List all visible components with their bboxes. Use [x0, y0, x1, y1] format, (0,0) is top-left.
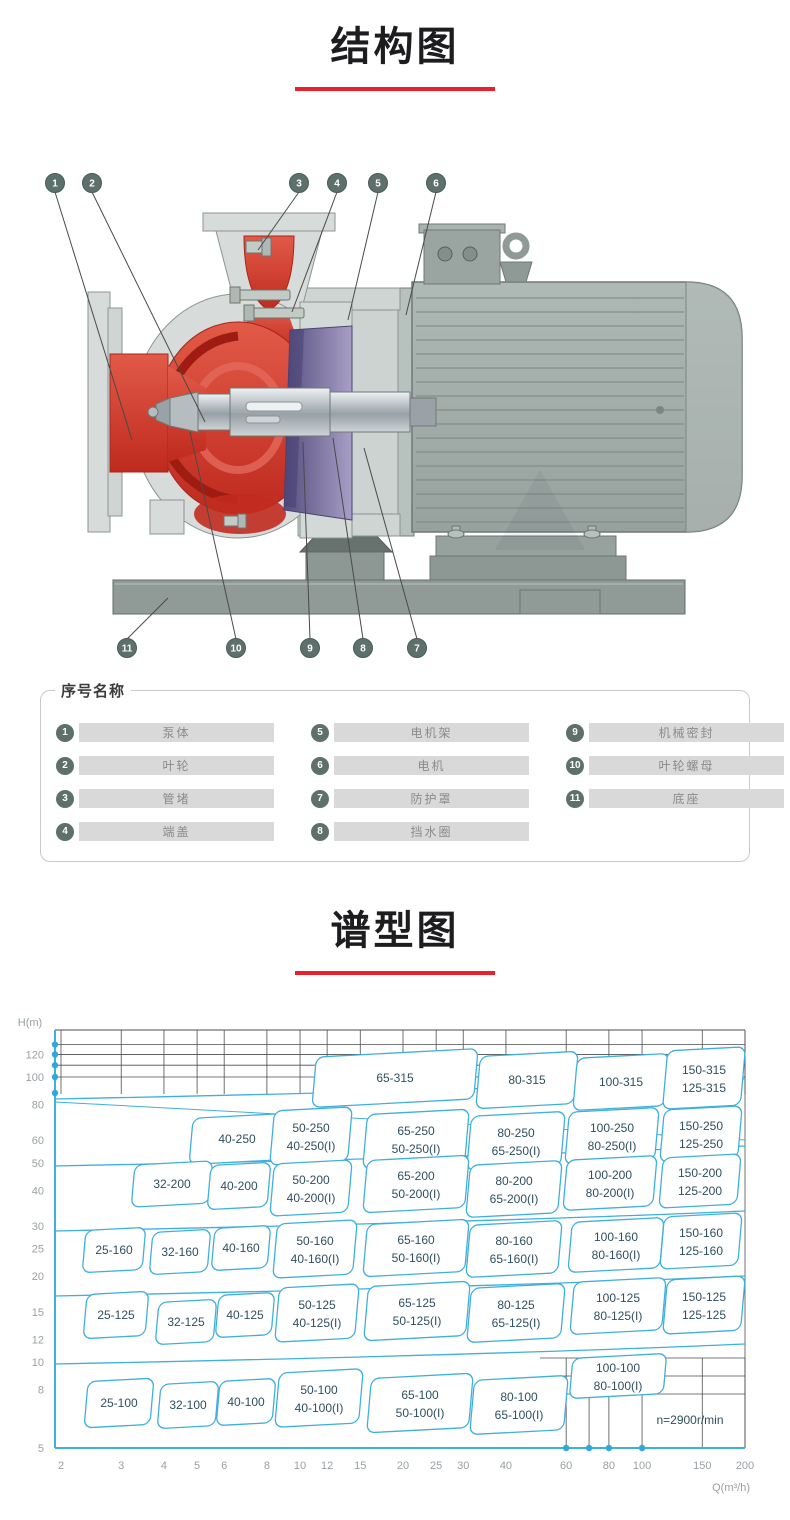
region-label: 50-200 [292, 1173, 330, 1187]
region-label: 40-160 [222, 1241, 260, 1255]
part-number-badge: 9 [566, 724, 584, 742]
speed-annotation: n=2900r/min [656, 1413, 723, 1427]
parts-list-title: 序号名称 [55, 680, 131, 701]
x-tick-label: 6 [221, 1460, 227, 1472]
callout-5: 5 [369, 174, 388, 193]
part-label: 底座 [589, 789, 784, 808]
y-tick-label: 20 [32, 1271, 44, 1283]
x-tick-label: 60 [560, 1460, 572, 1472]
x-tick-label: 80 [603, 1460, 615, 1472]
region-label: 50-100(I) [396, 1406, 445, 1420]
region-label: 80-315 [508, 1073, 546, 1087]
region-label: 50-100 [300, 1383, 338, 1397]
region-label: 100-315 [599, 1075, 643, 1089]
region-label: 150-250 [679, 1119, 723, 1133]
svg-text:1: 1 [52, 179, 58, 190]
region-label: 65-250(I) [492, 1144, 541, 1158]
parts-column-1: 1泵体2叶轮3管堵4端盖 [56, 723, 274, 855]
y-axis-title: H(m) [18, 1017, 42, 1029]
svg-text:10: 10 [230, 644, 242, 655]
callout-11: 11 [118, 639, 137, 658]
pump-model-region [270, 1160, 352, 1216]
x-axis-title: Q(m³/h) [712, 1482, 750, 1494]
axis-dot [52, 1090, 58, 1096]
axis-dot [586, 1445, 592, 1451]
region-label: 100-250 [590, 1121, 634, 1135]
region-label: 80-100 [500, 1390, 538, 1404]
region-label: 32-160 [161, 1245, 199, 1259]
pump-model-region [466, 1160, 562, 1217]
pump-model-region [270, 1107, 353, 1165]
pump-structure-diagram: 1234561110987 [0, 140, 790, 680]
region-label: 80-100(I) [594, 1379, 643, 1393]
parts-list-box: 序号名称 1泵体2叶轮3管堵4端盖 5电机架6电机7防护罩8挡水圈 9机械密封1… [40, 690, 750, 862]
x-tick-label: 2 [58, 1460, 64, 1472]
region-label: 40-160(I) [291, 1252, 340, 1266]
region-label: 40-250 [218, 1132, 256, 1146]
x-tick-label: 4 [161, 1460, 167, 1472]
region-label: 150-125 [682, 1290, 726, 1304]
y-tick-label: 80 [32, 1100, 44, 1112]
region-label: 32-125 [167, 1315, 205, 1329]
part-item-11: 11底座 [566, 789, 784, 808]
region-label: 80-250 [497, 1126, 535, 1140]
x-tick-label: 12 [321, 1460, 333, 1472]
axis-dot [52, 1051, 58, 1057]
region-label: 65-315 [376, 1071, 414, 1085]
part-label: 叶轮 [79, 756, 274, 775]
region-label: 80-125(I) [594, 1309, 643, 1323]
part-item-5: 5电机架 [311, 723, 529, 742]
part-label: 泵体 [79, 723, 274, 742]
callout-4: 4 [328, 174, 347, 193]
part-label: 挡水圈 [334, 822, 529, 841]
motor-body [396, 282, 742, 536]
axis-dot [563, 1445, 569, 1451]
x-tick-label: 15 [354, 1460, 366, 1472]
pump-model-region [470, 1375, 569, 1434]
x-tick-label: 10 [294, 1460, 306, 1472]
pump-model-region [563, 1155, 657, 1210]
region-label: 65-160(I) [490, 1252, 539, 1266]
callout-3: 3 [290, 174, 309, 193]
y-tick-label: 25 [32, 1244, 44, 1256]
x-tick-label: 150 [693, 1460, 711, 1472]
region-label: 65-125(I) [492, 1316, 541, 1330]
region-label: 50-200(I) [392, 1187, 441, 1201]
svg-text:7: 7 [414, 644, 420, 655]
svg-text:5: 5 [375, 179, 381, 190]
svg-text:6: 6 [433, 179, 439, 190]
part-item-7: 7防护罩 [311, 789, 529, 808]
svg-text:4: 4 [334, 179, 340, 190]
region-label: 150-315 [682, 1063, 726, 1077]
part-number-badge: 3 [56, 790, 74, 808]
pump-model-region [568, 1217, 664, 1272]
title-underline [295, 87, 495, 91]
x-tick-label: 30 [457, 1460, 469, 1472]
region-label: 65-160 [397, 1233, 435, 1247]
region-label: 125-125 [682, 1308, 726, 1322]
pump-model-region [363, 1219, 469, 1277]
y-tick-label: 12 [32, 1334, 44, 1346]
pump-model-region [367, 1373, 474, 1433]
region-label: 125-160 [679, 1244, 723, 1258]
part-item-3: 3管堵 [56, 789, 274, 808]
pump-model-region [364, 1281, 471, 1341]
y-tick-label: 30 [32, 1221, 44, 1233]
pump-model-region [663, 1276, 746, 1334]
part-label: 电机 [334, 756, 529, 775]
region-label: 40-200(I) [287, 1191, 336, 1205]
region-label: 150-200 [678, 1166, 722, 1180]
part-number-badge: 11 [566, 790, 584, 808]
spectrum-title-block: 谱型图 [0, 898, 790, 975]
part-number-badge: 8 [311, 823, 329, 841]
region-label: 40-125(I) [293, 1316, 342, 1330]
base-plate [113, 580, 685, 614]
region-label: 25-160 [95, 1243, 133, 1257]
region-label: 50-125(I) [393, 1314, 442, 1328]
part-number-badge: 4 [56, 823, 74, 841]
part-number-badge: 10 [566, 757, 584, 775]
region-label: 100-200 [588, 1168, 632, 1182]
region-label: 50-250 [292, 1121, 330, 1135]
region-label: 125-315 [682, 1081, 726, 1095]
parts-column-3: 9机械密封10叶轮螺母11底座 [566, 723, 784, 822]
pump-model-region [363, 1155, 469, 1213]
callout-9: 9 [301, 639, 320, 658]
region-label: 100-160 [594, 1230, 638, 1244]
part-item-4: 4端盖 [56, 822, 274, 841]
region-label: 40-100(I) [295, 1401, 344, 1415]
region-label: 150-160 [679, 1226, 723, 1240]
region-label: 100-125 [596, 1291, 640, 1305]
part-label: 电机架 [334, 723, 529, 742]
y-tick-label: 120 [26, 1049, 44, 1061]
callout-1: 1 [46, 174, 65, 193]
part-number-badge: 1 [56, 724, 74, 742]
region-label: 80-160(I) [592, 1248, 641, 1262]
pump-model-region [275, 1369, 364, 1428]
region-label: 40-250(I) [287, 1139, 336, 1153]
svg-text:8: 8 [360, 644, 366, 655]
region-label: 40-200 [220, 1179, 258, 1193]
region-label: 50-125 [298, 1298, 336, 1312]
y-tick-label: 10 [32, 1357, 44, 1369]
region-label: 80-250(I) [588, 1139, 637, 1153]
pipe-plug [246, 238, 271, 256]
region-label: 65-250 [397, 1124, 435, 1138]
y-tick-label: 60 [32, 1135, 44, 1147]
region-label: 25-125 [97, 1308, 135, 1322]
region-label: 65-100 [401, 1388, 439, 1402]
part-label: 端盖 [79, 822, 274, 841]
x-tick-label: 100 [633, 1460, 651, 1472]
lifting-eye [500, 236, 532, 282]
y-tick-label: 5 [38, 1443, 44, 1455]
x-tick-label: 3 [118, 1460, 124, 1472]
x-tick-label: 40 [500, 1460, 512, 1472]
region-label: 125-250 [679, 1137, 723, 1151]
region-label: 32-200 [153, 1177, 191, 1191]
x-tick-label: 25 [430, 1460, 442, 1472]
x-tick-label: 200 [736, 1460, 754, 1472]
svg-text:2: 2 [89, 179, 95, 190]
pump-model-region [660, 1106, 742, 1162]
region-label: 50-160 [296, 1234, 334, 1248]
y-tick-label: 40 [32, 1185, 44, 1197]
region-label: 40-100 [227, 1395, 265, 1409]
axis-dot [52, 1074, 58, 1080]
y-tick-label: 50 [32, 1158, 44, 1170]
region-label: 32-100 [169, 1398, 207, 1412]
pump-model-region [663, 1047, 746, 1109]
region-label: 80-200(I) [586, 1186, 635, 1200]
y-tick-label: 15 [32, 1307, 44, 1319]
part-item-2: 2叶轮 [56, 756, 274, 775]
region-label: 125-200 [678, 1184, 722, 1198]
callout-2: 2 [83, 174, 102, 193]
region-label: 65-100(I) [495, 1408, 544, 1422]
svg-text:3: 3 [296, 179, 302, 190]
part-label: 防护罩 [334, 789, 529, 808]
axis-dot [52, 1062, 58, 1068]
region-label: 40-125 [226, 1308, 264, 1322]
region-label: 65-200 [397, 1169, 435, 1183]
structure-title-block: 结构图 [0, 14, 790, 91]
part-item-10: 10叶轮螺母 [566, 756, 784, 775]
terminal-box [419, 224, 505, 284]
y-tick-label: 8 [38, 1385, 44, 1397]
callout-7: 7 [408, 639, 427, 658]
y-tick-label: 100 [26, 1072, 44, 1084]
part-item-9: 9机械密封 [566, 723, 784, 742]
callout-6: 6 [427, 174, 446, 193]
axis-dot [52, 1041, 58, 1047]
x-tick-label: 20 [397, 1460, 409, 1472]
pump-selection-chart: 65-31580-315100-315150-315125-31540-2505… [0, 1010, 790, 1515]
pump-model-region [273, 1220, 358, 1279]
part-label: 管堵 [79, 789, 274, 808]
region-label: 80-160 [495, 1234, 533, 1248]
region-label: 65-125 [398, 1296, 436, 1310]
pump-model-region [467, 1283, 566, 1342]
svg-text:11: 11 [122, 644, 133, 655]
region-label: 65-200(I) [490, 1192, 539, 1206]
spectrum-section-title: 谱型图 [0, 898, 790, 956]
pump-model-region [659, 1154, 741, 1208]
region-label: 50-160(I) [392, 1251, 441, 1265]
part-number-badge: 5 [311, 724, 329, 742]
region-label: 100-100 [596, 1361, 640, 1375]
pump-shaft [198, 388, 436, 436]
svg-text:9: 9 [307, 644, 313, 655]
part-label: 叶轮螺母 [589, 756, 784, 775]
part-item-1: 1泵体 [56, 723, 274, 742]
region-label: 80-125 [497, 1298, 535, 1312]
region-label: 80-200 [495, 1174, 533, 1188]
x-tick-label: 8 [264, 1460, 270, 1472]
structure-section-title: 结构图 [0, 14, 790, 72]
part-number-badge: 6 [311, 757, 329, 775]
callout-10: 10 [227, 639, 246, 658]
x-tick-label: 5 [194, 1460, 200, 1472]
drain-plug [224, 514, 246, 528]
title-underline [295, 971, 495, 975]
region-label: 50-250(I) [392, 1142, 441, 1156]
pump-model-region [570, 1277, 666, 1334]
pump-model-region [275, 1284, 360, 1343]
part-number-badge: 7 [311, 790, 329, 808]
pump-model-region [660, 1213, 742, 1269]
axis-dot [639, 1445, 645, 1451]
callout-8: 8 [354, 639, 373, 658]
parts-column-2: 5电机架6电机7防护罩8挡水圈 [311, 723, 529, 855]
region-label: 25-100 [100, 1396, 138, 1410]
part-label: 机械密封 [589, 723, 784, 742]
part-item-6: 6电机 [311, 756, 529, 775]
axis-dot [606, 1445, 612, 1451]
pump-model-region [466, 1220, 562, 1277]
part-item-8: 8挡水圈 [311, 822, 529, 841]
part-number-badge: 2 [56, 757, 74, 775]
